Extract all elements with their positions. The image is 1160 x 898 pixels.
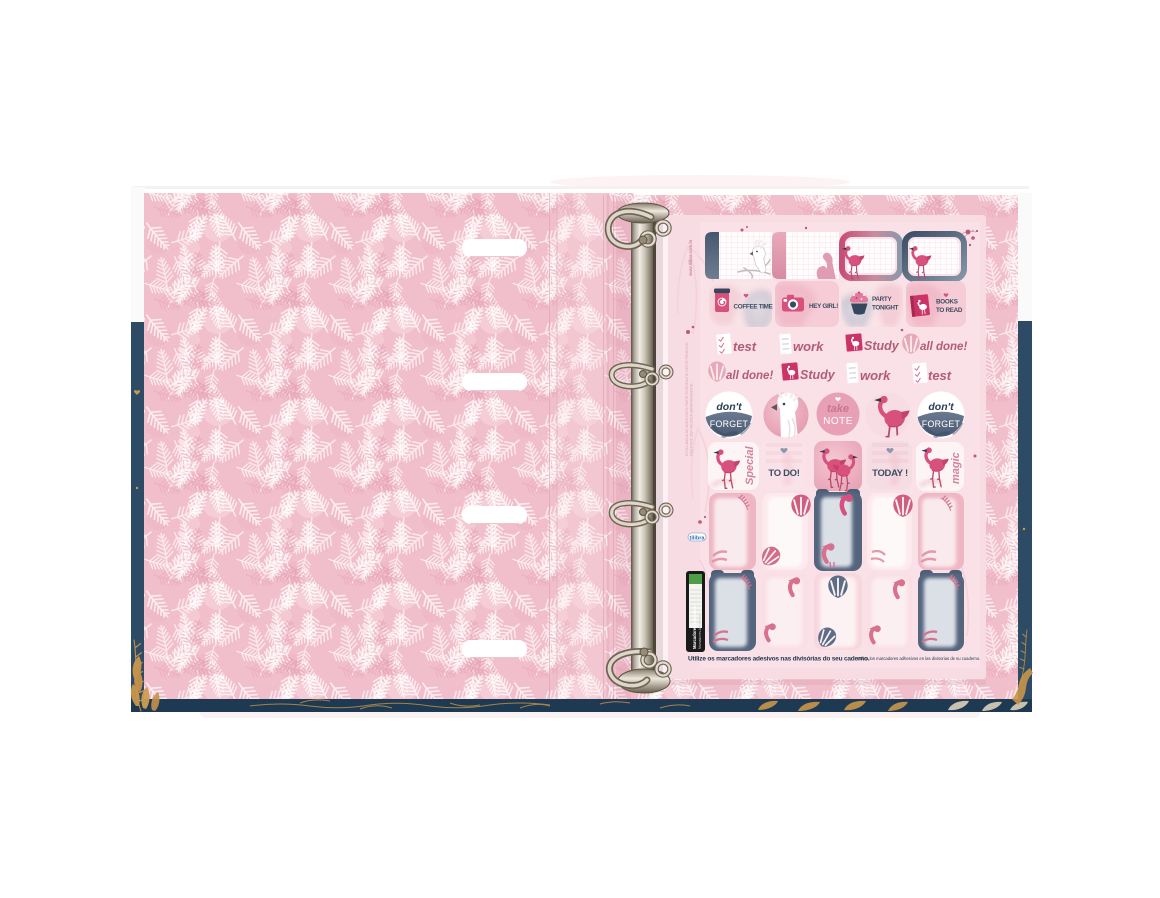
svg-text:Special: Special (744, 446, 756, 485)
svg-text:Marcadores Adhesivos: Marcadores Adhesivos (698, 614, 702, 649)
svg-text:Utilize os marcadores adesivos: Utilize os marcadores adesivos nas divis… (688, 656, 870, 663)
svg-text:take: take (827, 403, 849, 415)
svg-text:magic: magic (950, 452, 962, 484)
svg-text:don't: don't (716, 401, 742, 413)
svg-text:Utiliza los marcadores adhesiv: Utiliza los marcadores adhesivos en las … (857, 656, 980, 661)
svg-text:all done!: all done! (726, 370, 773, 382)
svg-text:HEY GIRL!: HEY GIRL! (809, 303, 838, 310)
svg-text:www.tilibra.com.br: www.tilibra.com.br (688, 239, 693, 276)
svg-text:test: test (928, 368, 952, 383)
svg-text:FORGET: FORGET (922, 419, 961, 429)
svg-text:COFFEE TIME: COFFEE TIME (734, 304, 773, 311)
svg-text:tilibra: tilibra (690, 536, 706, 542)
svg-text:don't: don't (928, 401, 954, 413)
svg-text:NOTE: NOTE (823, 416, 853, 427)
svg-text:Study: Study (864, 339, 900, 353)
svg-text:test: test (733, 339, 757, 354)
svg-text:all done!: all done! (920, 341, 967, 353)
svg-text:TONIGHT: TONIGHT (872, 305, 899, 312)
svg-text:PARTY: PARTY (872, 296, 892, 303)
svg-text:NAO PODE SER VENDIDA SEPARADAM: NAO PODE SER VENDIDA SEPARADAMENTE (690, 383, 694, 456)
svg-text:TODAY !: TODAY ! (872, 468, 908, 479)
svg-text:Study: Study (800, 368, 836, 382)
svg-text:ESTA LAMINA DE ADESIVOS E PART: ESTA LAMINA DE ADESIVOS E PARTE INTEGRAN… (685, 342, 689, 456)
svg-text:TO READ: TO READ (936, 307, 963, 314)
svg-text:Marcadores Adesivos: Marcadores Adesivos (692, 605, 697, 649)
svg-text:FORGET: FORGET (710, 419, 749, 429)
svg-text:BOOKS: BOOKS (936, 299, 958, 306)
svg-text:TO DO!: TO DO! (768, 468, 799, 479)
svg-text:work: work (860, 368, 891, 383)
svg-text:work: work (793, 339, 824, 354)
